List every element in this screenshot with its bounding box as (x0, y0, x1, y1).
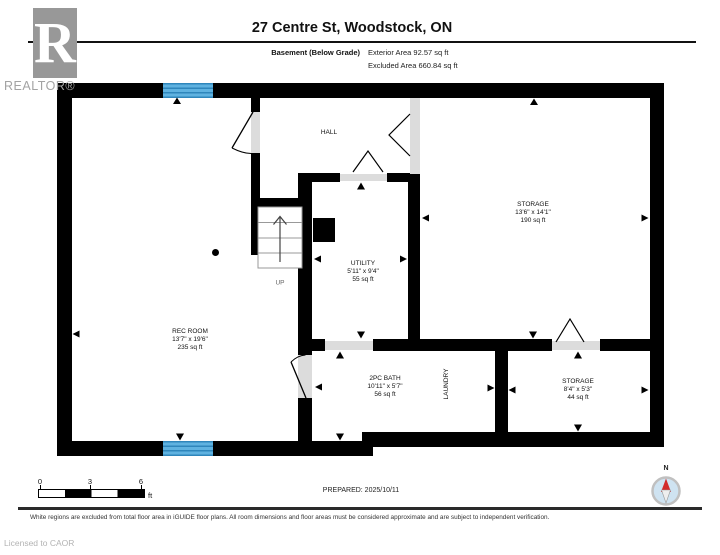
floorplan-page: R REALTOR® 27 Centre St, Woodstock, ON B… (0, 0, 720, 555)
room-label-storage-main: STORAGE 13'6" x 14'1" 190 sq ft (515, 201, 551, 225)
stairs-up-label: UP (275, 280, 284, 287)
arrow-left-rec-room (73, 331, 80, 338)
wall-mid-c (600, 339, 650, 351)
hall-storage-opening (410, 98, 420, 174)
room-name: STORAGE (562, 378, 594, 386)
door-leaf (232, 112, 253, 148)
room-area: 190 sq ft (515, 217, 551, 225)
arrow-right-utility (400, 256, 407, 263)
bath-door-jamb (298, 355, 312, 398)
disclaimer-text: White regions are excluded from total fl… (30, 514, 702, 521)
arrow-up-storage-top (530, 99, 538, 106)
realtor-logo: R (33, 8, 77, 78)
camera-location-dot (212, 249, 219, 256)
floor-label: Basement (Below Grade) (240, 48, 360, 57)
room-label-hall: HALL (321, 129, 337, 137)
room-name: STORAGE (515, 201, 551, 209)
wall-right (650, 83, 664, 447)
arrow-down-storage-main (529, 332, 537, 339)
rec-room-door-jamb (251, 112, 260, 153)
arrow-up-utility-door (357, 183, 365, 190)
window-bottom (163, 441, 213, 456)
arrow-down-bath (336, 434, 344, 441)
header-divider (28, 41, 696, 43)
room-name: 2PC BATH (367, 375, 402, 383)
furnace-block (313, 218, 335, 242)
wall-center-vertical-lower (298, 398, 312, 441)
wall-hall-stub (251, 98, 260, 112)
arrow-down-window-bottom (176, 434, 184, 441)
compass-rose (653, 478, 680, 505)
room-area: 55 sq ft (347, 276, 379, 284)
scale-unit: ft (148, 491, 152, 500)
staircase (258, 207, 302, 268)
room-label-laundry: LAUNDRY (443, 369, 451, 400)
arrow-left-bath-door (315, 384, 322, 391)
arrow-up-bath-opening (336, 352, 344, 359)
opening-caret-utility (353, 151, 383, 172)
arrow-up-window-top (173, 98, 181, 105)
wall-bottom-right (362, 432, 664, 447)
room-label-rec-room: REC ROOM 13'7" x 19'6" 235 sq ft (172, 328, 208, 352)
utility-door-opening (340, 174, 387, 181)
room-dims: 13'6" x 14'1" (515, 209, 551, 217)
wall-mid-a (312, 339, 325, 351)
realtor-logo-letter: R (34, 8, 76, 78)
footer-divider (18, 507, 702, 510)
room-name: HALL (321, 129, 337, 137)
compass-north-label: N (663, 465, 668, 472)
opening-caret-hall-storage (389, 114, 410, 156)
room-dims: 13'7" x 19'6" (172, 336, 208, 344)
prepared-date: PREPARED: 2025/10/11 (323, 487, 399, 494)
rec-room-door (232, 112, 253, 154)
room-name: LAUNDRY (443, 369, 451, 400)
room-label-storage-small: STORAGE 8'4" x 5'3" 44 sq ft (562, 378, 594, 402)
room-area: 235 sq ft (172, 344, 208, 352)
room-name: UTILITY (347, 260, 379, 268)
scale-bar (38, 489, 145, 498)
stairs-up-arrow-icon (274, 217, 287, 263)
arrow-right-laundry (488, 385, 495, 392)
arrow-down-utility-opening (357, 332, 365, 339)
arrow-right-storage-small (642, 387, 649, 394)
realtor-brand-text: REALTOR® (4, 79, 84, 93)
wall-bottom-left (57, 441, 373, 456)
wall-utility-top-a (312, 173, 340, 182)
door-swing-arc (232, 148, 253, 154)
compass-needle-north (661, 479, 671, 493)
room-dims: 8'4" x 5'3" (562, 386, 594, 394)
wall-top (57, 83, 664, 98)
utility-bath-opening (325, 341, 373, 350)
room-dims: 10'11" x 5'7" (367, 383, 402, 391)
arrow-up-storage-small-opening (574, 352, 582, 359)
room-area: 56 sq ft (367, 391, 402, 399)
license-text: Licensed to CAOR (4, 538, 74, 548)
exterior-area: Exterior Area 92.57 sq ft (368, 48, 448, 57)
wall-left (57, 83, 72, 456)
storage-small-opening (552, 341, 600, 350)
room-label-utility: UTILITY 5'11" x 9'4" 55 sq ft (347, 260, 379, 284)
excluded-area: Excluded Area 660.84 sq ft (368, 61, 458, 70)
page-title: 27 Centre St, Woodstock, ON (252, 20, 452, 36)
opening-caret-storage-small (556, 319, 584, 342)
arrow-right-storage (642, 215, 649, 222)
room-name: REC ROOM (172, 328, 208, 336)
wall-laundry-storage-divider (495, 351, 508, 432)
compass-needle-south (662, 490, 671, 503)
arrow-down-storage-small (574, 425, 582, 432)
window-top (163, 83, 213, 98)
room-area: 44 sq ft (562, 394, 594, 402)
arrow-left-utility (314, 256, 321, 263)
wall-mid-b (373, 339, 552, 351)
wall-storage-left (408, 173, 420, 351)
arrow-left-storage-small (509, 387, 516, 394)
room-label-bath: 2PC BATH 10'11" x 5'7" 56 sq ft (367, 375, 402, 399)
room-dims: 5'11" x 9'4" (347, 268, 379, 276)
wall-center-vertical-upper (298, 173, 312, 355)
arrow-left-storage (422, 215, 429, 222)
